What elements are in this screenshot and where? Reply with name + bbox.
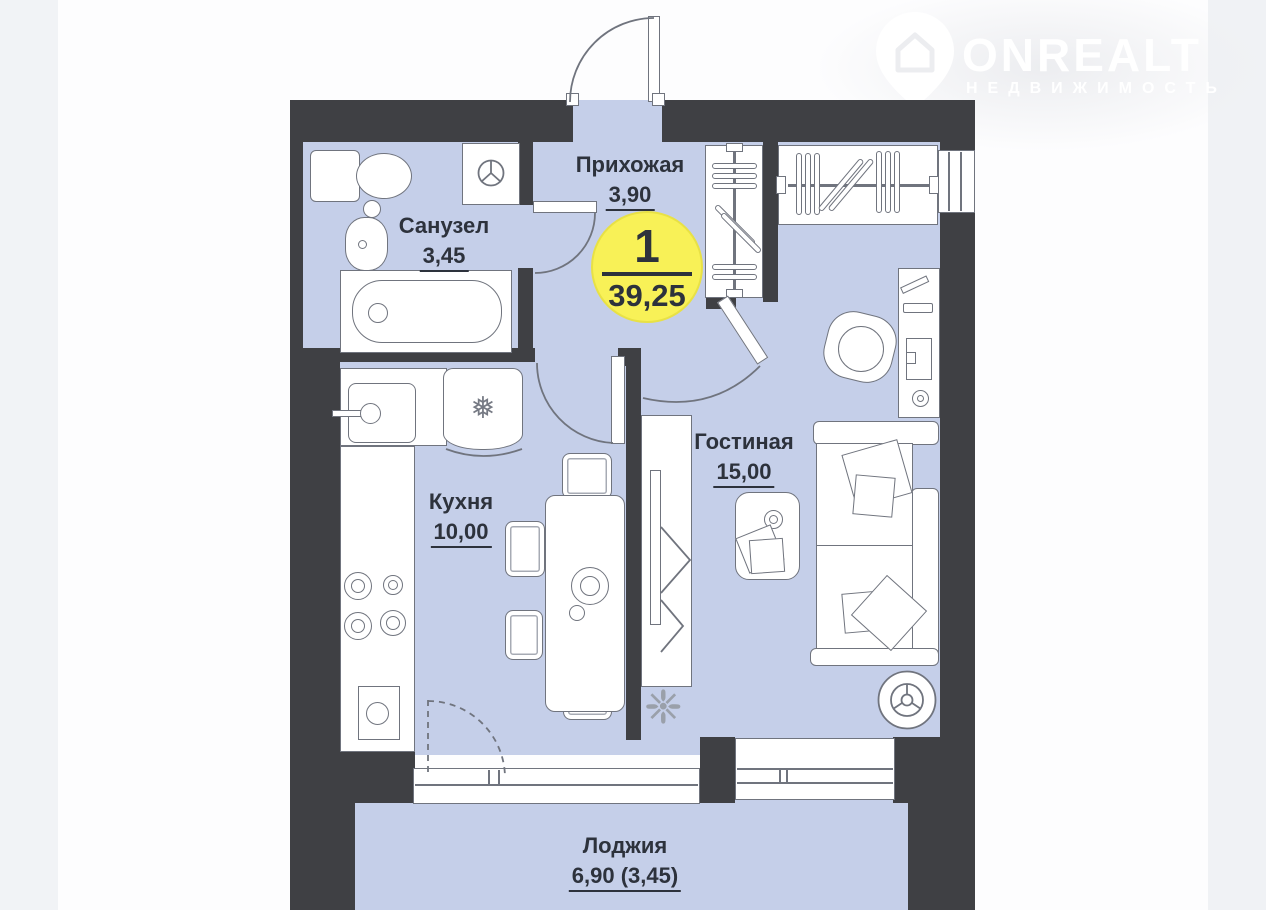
- kitchen-name: Кухня: [429, 488, 493, 516]
- unit-badge-divider: [602, 272, 692, 276]
- loggia-window-line: [737, 768, 893, 770]
- dining-chair-left-2: [505, 610, 543, 660]
- toilet-tank: [310, 150, 360, 202]
- bathtub-drain: [368, 303, 388, 323]
- toilet-flush-button: [363, 200, 381, 218]
- kitchen-door-leaf: [611, 356, 625, 444]
- room-label-hallway: Прихожая 3,90: [576, 151, 685, 211]
- wall-right-lower: [908, 737, 975, 910]
- unit-rooms-count: 1: [634, 223, 660, 269]
- balcony-door-tick: [488, 770, 490, 784]
- desk-cup-dot: [917, 395, 924, 402]
- tv-stand: [641, 415, 692, 687]
- window-right-wall: [938, 150, 975, 213]
- closet-hanger-bar-3: [712, 183, 757, 189]
- hallway-area: 3,90: [606, 181, 655, 212]
- wardrobe-hanger-bar-5: [885, 151, 891, 213]
- entrance-door-jamb-left: [566, 93, 579, 106]
- wall-partition: [626, 348, 641, 740]
- desk-book-notch: [906, 352, 916, 364]
- dining-chair-left-1: [505, 521, 545, 577]
- coffee-table-decor-dot: [769, 515, 778, 524]
- room-label-kitchen: Кухня 10,00: [429, 488, 493, 548]
- wall-bottom-pier-left: [340, 752, 415, 803]
- closet-hanger-bar-2: [712, 173, 757, 179]
- living-area: 15,00: [713, 458, 774, 489]
- hallway-name: Прихожая: [576, 151, 685, 179]
- entrance-door-leaf: [648, 16, 660, 102]
- sofa-armrest-top: [813, 421, 939, 445]
- room-label-living: Гостиная 15,00: [694, 428, 793, 488]
- laptop-base: [903, 303, 933, 313]
- room-label-loggia: Лоджия 6,90 (3,45): [569, 832, 681, 892]
- window-right-glass-line-2: [960, 152, 962, 211]
- closet-cap-top: [726, 143, 743, 152]
- balcony-door-glass-line: [415, 784, 698, 786]
- loggia-name: Лоджия: [569, 832, 681, 860]
- bathroom-area: 3,45: [420, 242, 469, 273]
- loggia-window-tick-2: [786, 770, 788, 782]
- wall-bathroom-right-top: [518, 140, 533, 205]
- floor-plant-icon: ❈: [644, 684, 683, 730]
- wall-hallway-living: [763, 140, 778, 302]
- teapot-lid: [580, 576, 600, 596]
- stove-burner-3-inner: [351, 619, 365, 633]
- wall-left-upper: [290, 142, 303, 354]
- wardrobe-cap-right: [929, 176, 939, 194]
- sofa-backrest: [911, 488, 939, 663]
- kitchen-faucet: [360, 403, 381, 424]
- floor-plan: ONREALT НЕДВИЖИМОСТЬ: [0, 0, 1266, 910]
- entrance-door-arc: [570, 18, 654, 102]
- wardrobe-hanger-bar-1: [796, 153, 802, 215]
- unit-badge: 1 39,25: [591, 211, 703, 323]
- room-label-bathroom: Санузел 3,45: [399, 212, 489, 272]
- brand-name: ONREALT: [962, 28, 1202, 82]
- fridge-snowflake-icon: ❅: [470, 394, 495, 424]
- water-heater: [462, 143, 520, 205]
- loggia-window-tick: [779, 770, 781, 782]
- brand-subtitle: НЕДВИЖИМОСТЬ: [966, 80, 1227, 98]
- entrance-door-jamb-right: [652, 93, 665, 106]
- stove-burner-4-inner: [386, 616, 400, 630]
- coffee-table-card-2: [749, 538, 785, 574]
- wall-right-upper: [940, 142, 975, 739]
- background-left-band: [0, 0, 58, 910]
- balcony-door-tick-2: [498, 770, 500, 784]
- entrance-opening: [573, 100, 662, 142]
- stove-burner-2-inner: [388, 580, 398, 590]
- wardrobe-hanger-bar-2: [805, 153, 811, 215]
- sofa-armrest-bottom: [810, 648, 939, 666]
- balcony-door-unit: [413, 768, 700, 804]
- cup: [569, 605, 585, 621]
- washing-machine-door: [366, 702, 389, 725]
- stove-burner-1-inner: [351, 579, 365, 593]
- office-chair-seat: [838, 326, 884, 372]
- window-right-glass-line: [948, 152, 950, 211]
- living-name: Гостиная: [694, 428, 793, 456]
- loggia-window-line-2: [737, 782, 893, 784]
- closet-hanger-bar-4: [712, 264, 757, 270]
- loggia-area: 6,90 (3,45): [569, 862, 681, 893]
- bathroom-name: Санузел: [399, 212, 489, 240]
- tv-screen: [650, 470, 661, 625]
- sofa-pillow-2: [852, 474, 895, 517]
- wall-bottom-pier-right: [893, 737, 908, 803]
- wardrobe-hanger-bar-4: [876, 151, 882, 213]
- fridge: ❅: [443, 368, 523, 450]
- wardrobe-hanger-bar-6: [894, 151, 900, 213]
- bathroom-sink-drain: [358, 240, 367, 249]
- closet-hanger-bar-5: [712, 274, 757, 280]
- toilet-bowl: [356, 153, 412, 199]
- wall-bottom-pier-middle: [700, 737, 735, 803]
- unit-total-area: 39,25: [608, 280, 686, 311]
- kitchen-area: 10,00: [430, 518, 491, 549]
- closet-hanger-bar-1: [712, 163, 757, 169]
- wardrobe-cap-left: [776, 176, 786, 194]
- dining-chair-top: [562, 453, 612, 499]
